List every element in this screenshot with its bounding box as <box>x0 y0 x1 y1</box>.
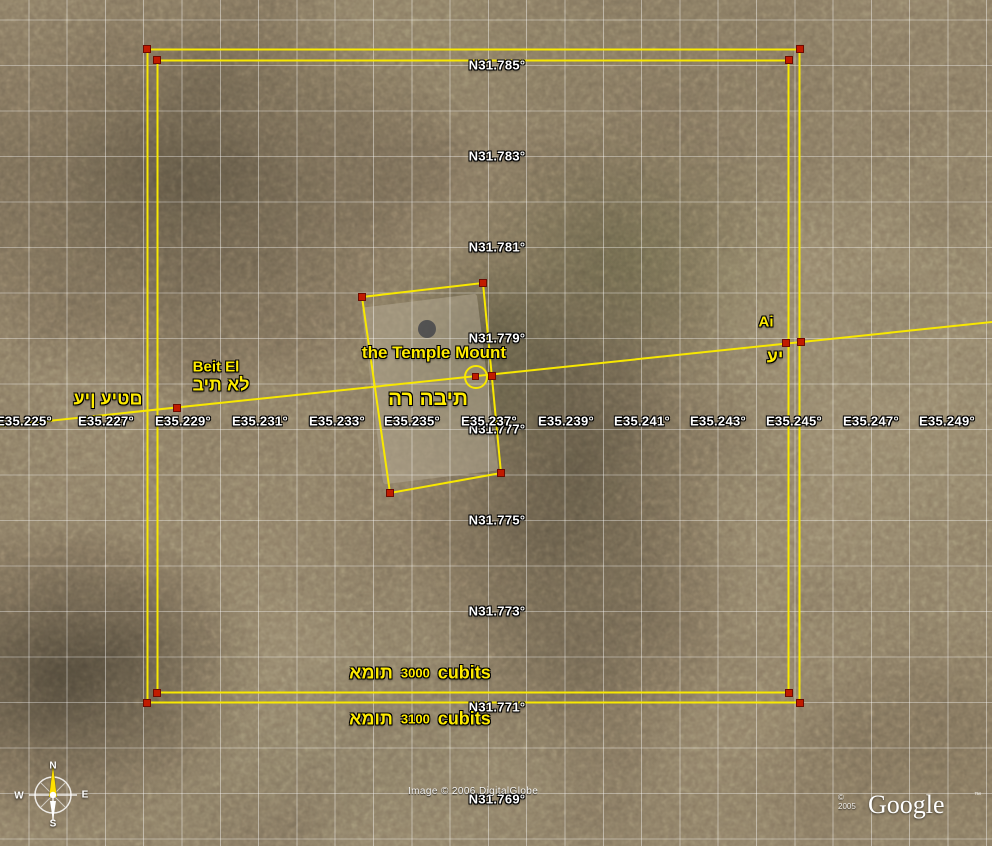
satellite-map-view[interactable]: N31.785°N31.783°N31.781°N31.779°N31.777°… <box>0 0 992 846</box>
label-temple-mount-en: the Temple Mount <box>362 343 506 363</box>
label-ai-en: Ai <box>759 314 774 331</box>
cubits-number: 3100 <box>401 712 430 727</box>
label-3000-cubits: אמות 3000 cubits <box>349 663 491 684</box>
cubits-number: 3000 <box>401 666 430 681</box>
compass-s: S <box>50 819 57 830</box>
label-3100-cubits: אמות 3100 cubits <box>349 709 491 730</box>
imagery-credit: Image © 2006 DigitalGlobe <box>408 786 538 797</box>
compass-w: W <box>14 791 23 802</box>
label-beit-el-he: בית אל <box>192 375 249 396</box>
cubits-unit: cubits <box>438 709 491 730</box>
compass-rose: N E S W <box>13 755 93 835</box>
cubits-hebrew: אמות <box>349 709 393 730</box>
cubits-hebrew: אמות <box>349 663 393 684</box>
label-ein-eitam-he: עין עיטם <box>74 389 143 410</box>
label-beit-el-en: Beit El <box>193 359 240 376</box>
logo-copyright: © 2005 <box>838 793 856 811</box>
label-ai-he: עי <box>767 347 784 368</box>
compass-e: E <box>82 790 89 801</box>
logo-trademark: ™ <box>974 792 981 799</box>
cubits-unit: cubits <box>438 663 491 684</box>
label-temple-mount-he: הר הבית <box>388 387 468 411</box>
overlay-shapes <box>0 0 992 846</box>
compass-n: N <box>49 761 56 772</box>
logo-text: Google <box>868 790 945 820</box>
